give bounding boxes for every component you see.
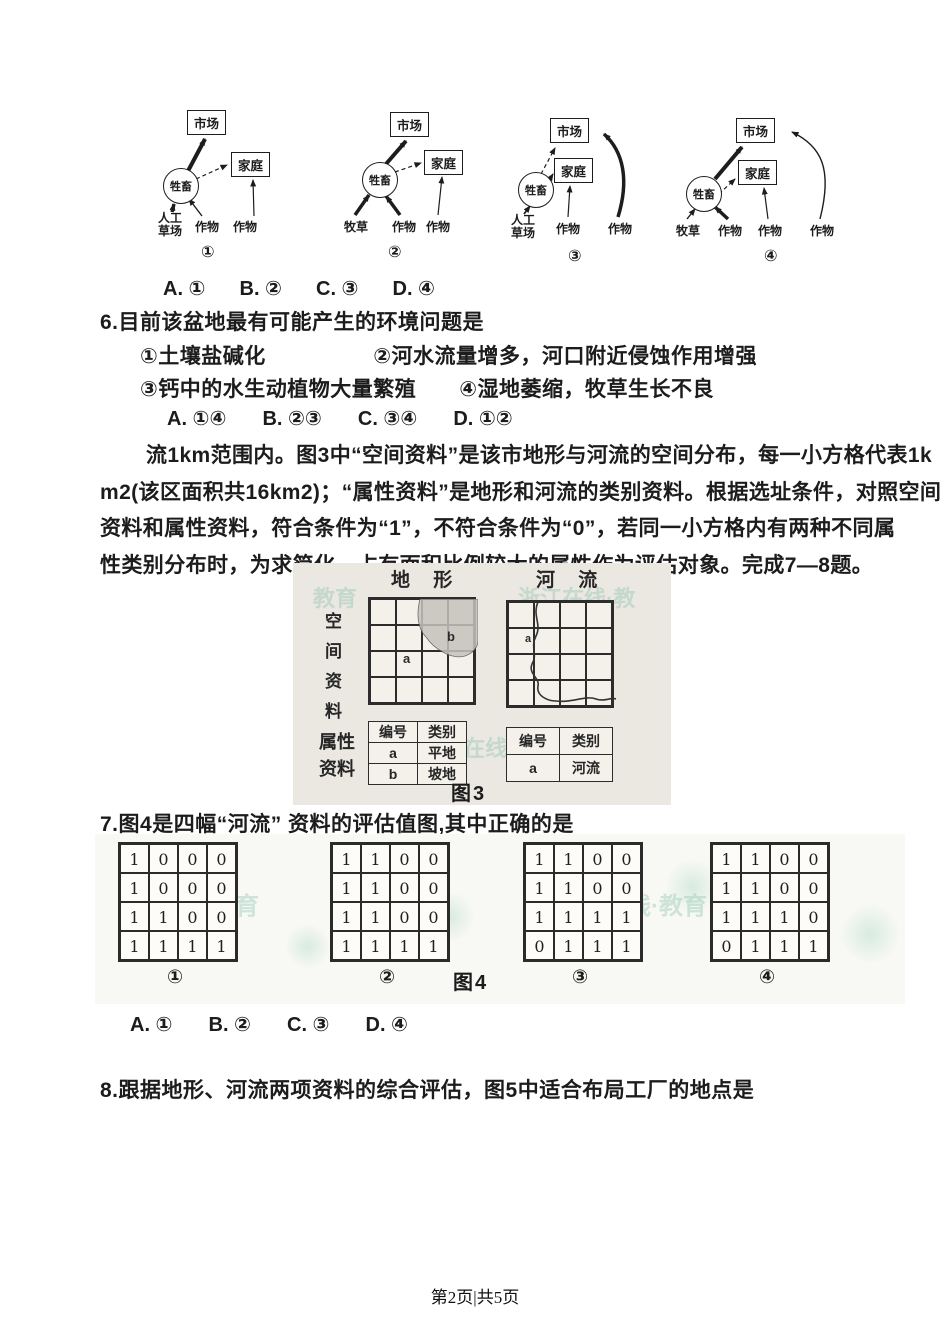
table-row: 编号 类别	[507, 728, 613, 755]
diagram-caption: ①	[201, 242, 215, 262]
eval-grid-cell: 1	[361, 844, 390, 873]
q7-option-b: B. ②	[209, 1012, 252, 1037]
market-node: 市场	[736, 118, 775, 143]
eval-grid-cell: 1	[120, 844, 149, 873]
q8-stem: 8.跟据地形、河流两项资料的综合评估，图5中适合布局工厂的地点是	[100, 1074, 754, 1104]
livestock-node: 牲畜	[686, 176, 722, 212]
page-footer: 第2页|共5页	[0, 1283, 950, 1308]
flow-diagram-1: 市场 牲畜 家庭 人工草场 作物 作物 ①	[155, 106, 305, 271]
q6-option-c: C. ③④	[358, 406, 417, 431]
eval-grid-cell: 1	[361, 902, 390, 931]
figure3: 教育 浙江在线·教 浙江 在线 地 形 河 流 空间资料 b a a 属性资料 …	[293, 563, 671, 805]
flow-diagram-2: 市场 牲畜 家庭 牧草 作物 作物 ②	[338, 106, 488, 271]
terrain-label-b: b	[447, 629, 455, 644]
market-node: 市场	[390, 112, 429, 137]
cell: b	[369, 764, 418, 785]
q6-option-b: B. ②③	[262, 406, 321, 431]
river-line	[508, 602, 616, 710]
market-node: 市场	[187, 110, 226, 135]
q7-options-row: A. ① B. ② C. ③ D. ④	[130, 1012, 408, 1037]
attribute-data-label: 属性资料	[319, 729, 359, 783]
eval-grid-cell: 0	[149, 844, 178, 873]
eval-grid-cell: 0	[770, 844, 799, 873]
eval-grid-cell: 1	[525, 902, 554, 931]
eval-grid-cell: 0	[799, 873, 828, 902]
eval-grid-cell: 1	[741, 902, 770, 931]
eval-grid-cell: 1	[612, 931, 641, 960]
input-label: 作物	[810, 222, 834, 239]
col-header: 类别	[418, 722, 467, 743]
q5-option-a: A. ①	[163, 276, 206, 301]
eval-grid-cell: 0	[612, 873, 641, 902]
passage-line: m2(该区面积共16km2)；“属性资料”是地形和河流的类别资料。根据选址条件，…	[100, 475, 870, 512]
input-label: 作物	[608, 220, 632, 237]
cell: a	[369, 743, 418, 764]
input-label: 作物	[718, 222, 742, 239]
eval-grid-cell: 1	[525, 873, 554, 902]
eval-grid-cell: 1	[741, 873, 770, 902]
eval-grid-cell: 1	[554, 873, 583, 902]
grid-label-3: ③	[572, 966, 588, 989]
input-label: 作物	[758, 222, 782, 239]
river-label-a: a	[525, 633, 531, 645]
eval-grid-cell: 0	[799, 844, 828, 873]
figure4: 在线·教育 浙江在线·教育 1000100011001111 110011001…	[95, 834, 905, 1004]
eval-grid-3: 1100110011110111	[523, 842, 643, 962]
q7-option-a: A. ①	[130, 1012, 173, 1037]
eval-grid-cell: 1	[178, 931, 207, 960]
q6-option-d: D. ①②	[453, 406, 512, 431]
flow-diagram-3: 市场 牲畜 家庭 人工草场 作物 作物 ③	[508, 106, 673, 271]
eval-grid-cell: 0	[178, 844, 207, 873]
watermark-blob	[285, 924, 330, 969]
eval-grid-cell: 0	[178, 873, 207, 902]
col-header: 类别	[560, 728, 613, 755]
terrain-header: 地 形	[391, 565, 461, 592]
eval-grid-cell: 1	[332, 931, 361, 960]
watermark-blob	[840, 904, 900, 964]
eval-grid-cell: 1	[332, 902, 361, 931]
exam-page: 市场 牲畜 家庭 人工草场 作物 作物 ① 市场 牲畜 家庭 牧草 作物 作物 …	[0, 0, 950, 1344]
grid-label-4: ④	[759, 966, 775, 989]
diagram-caption: ④	[764, 246, 778, 266]
eval-grid-cell: 0	[525, 931, 554, 960]
eval-grid-cell: 1	[525, 844, 554, 873]
eval-grid-1: 1000100011001111	[118, 842, 238, 962]
livestock-node: 牲畜	[362, 162, 398, 198]
eval-grid-cell: 0	[149, 873, 178, 902]
eval-grid-cell: 1	[332, 844, 361, 873]
family-node: 家庭	[424, 150, 463, 175]
passage-line: 流1km范围内。图3中“空间资料”是该市地形与河流的空间分布，每一小方格代表1k	[100, 438, 870, 475]
eval-grid-cell: 1	[207, 931, 236, 960]
eval-grid-cell: 1	[120, 873, 149, 902]
cell: a	[507, 755, 560, 782]
q7-option-d: D. ④	[366, 1012, 409, 1037]
eval-grid-cell: 1	[120, 931, 149, 960]
cell: 平地	[418, 743, 467, 764]
q5-option-d: D. ④	[393, 276, 436, 301]
terrain-shaded-region	[370, 599, 478, 707]
eval-grid-cell: 1	[149, 902, 178, 931]
river-header: 河 流	[536, 565, 606, 592]
eval-grid-cell: 1	[120, 902, 149, 931]
q7-option-c: C. ③	[287, 1012, 330, 1037]
family-node: 家庭	[554, 158, 593, 183]
eval-grid-cell: 1	[361, 931, 390, 960]
eval-grid-cell: 1	[741, 931, 770, 960]
family-node: 家庭	[738, 160, 777, 185]
q6-stem: 6.目前该盆地最有可能产生的环境问题是	[100, 306, 484, 336]
input-label: 人工草场	[510, 214, 536, 240]
eval-grid-cell: 1	[741, 844, 770, 873]
q5-options-row: A. ① B. ② C. ③ D. ④	[163, 276, 435, 301]
q6-options-row: A. ①④ B. ②③ C. ③④ D. ①②	[167, 406, 513, 431]
eval-grid-cell: 1	[583, 902, 612, 931]
input-label: 人工草场	[157, 212, 183, 238]
q5-option-b: B. ②	[240, 276, 283, 301]
eval-grid-cell: 0	[390, 902, 419, 931]
q5-option-c: C. ③	[316, 276, 359, 301]
eval-grid-cell: 1	[554, 902, 583, 931]
eval-grid-4: 1100110011100111	[710, 842, 830, 962]
q6-choices-line2: ③钙中的水生动植物大量繁殖 ④湿地萎缩，牧草生长不良	[140, 373, 714, 403]
cell: 河流	[560, 755, 613, 782]
livestock-node: 牲畜	[518, 172, 554, 208]
eval-grid-cell: 0	[770, 873, 799, 902]
eval-grid-cell: 1	[712, 844, 741, 873]
eval-grid-cell: 0	[207, 902, 236, 931]
eval-grid-cell: 1	[770, 902, 799, 931]
input-label: 作物	[392, 218, 416, 235]
input-label: 作物	[556, 220, 580, 237]
livestock-node: 牲畜	[163, 168, 199, 204]
eval-grid-cell: 1	[770, 931, 799, 960]
terrain-label-a: a	[403, 651, 410, 666]
passage-line: 资料和属性资料，符合条件为“1”，不符合条件为“0”，若同一小方格内有两种不同属	[100, 511, 870, 548]
table-row: a 平地	[369, 743, 467, 764]
input-label: 牧草	[676, 222, 700, 239]
market-node: 市场	[550, 118, 589, 143]
eval-grid-cell: 0	[583, 873, 612, 902]
eval-grid-cell: 0	[178, 902, 207, 931]
q6-choices-line1: ①土壤盐碱化 ②河水流量增多，河口附近侵蚀作用增强	[140, 340, 757, 370]
eval-grid-cell: 1	[554, 931, 583, 960]
eval-grid-cell: 0	[390, 873, 419, 902]
eval-grid-cell: 0	[207, 844, 236, 873]
col-header: 编号	[369, 722, 418, 743]
eval-grid-cell: 0	[583, 844, 612, 873]
eval-grid-cell: 0	[419, 873, 448, 902]
family-node: 家庭	[231, 152, 270, 177]
figure4-caption: 图4	[453, 966, 488, 995]
diagram-caption: ③	[568, 246, 582, 266]
eval-grid-cell: 0	[207, 873, 236, 902]
eval-grid-cell: 0	[712, 931, 741, 960]
diagram-caption: ②	[388, 242, 402, 262]
eval-grid-cell: 1	[361, 873, 390, 902]
q6-option-a: A. ①④	[167, 406, 226, 431]
eval-grid-cell: 1	[799, 931, 828, 960]
input-label: 作物	[195, 218, 219, 235]
eval-grid-cell: 0	[799, 902, 828, 931]
table-row: a 河流	[507, 755, 613, 782]
spatial-data-label: 空间资料	[325, 607, 345, 727]
col-header: 编号	[507, 728, 560, 755]
eval-grid-cell: 1	[712, 873, 741, 902]
eval-grid-cell: 1	[712, 902, 741, 931]
eval-grid-cell: 0	[612, 844, 641, 873]
eval-grid-cell: 1	[612, 902, 641, 931]
eval-grid-cell: 1	[583, 931, 612, 960]
eval-grid-2: 1100110011001111	[330, 842, 450, 962]
grid-label-2: ②	[379, 966, 395, 989]
input-label: 作物	[233, 218, 257, 235]
input-label: 牧草	[344, 218, 368, 235]
eval-grid-cell: 0	[419, 844, 448, 873]
terrain-attr-table: 编号 类别 a 平地 b 坡地	[368, 721, 467, 785]
grid-label-1: ①	[167, 966, 183, 989]
eval-grid-cell: 1	[332, 873, 361, 902]
table-row: 编号 类别	[369, 722, 467, 743]
input-label: 作物	[426, 218, 450, 235]
eval-grid-cell: 1	[419, 931, 448, 960]
flow-diagram-4: 市场 牲畜 家庭 牧草 作物 作物 作物 ④	[672, 106, 892, 271]
figure3-caption: 图3	[451, 777, 486, 806]
eval-grid-cell: 0	[390, 844, 419, 873]
eval-grid-cell: 1	[554, 844, 583, 873]
eval-grid-cell: 1	[149, 931, 178, 960]
eval-grid-cell: 0	[419, 902, 448, 931]
eval-grid-cell: 1	[390, 931, 419, 960]
river-attr-table: 编号 类别 a 河流	[506, 727, 613, 782]
